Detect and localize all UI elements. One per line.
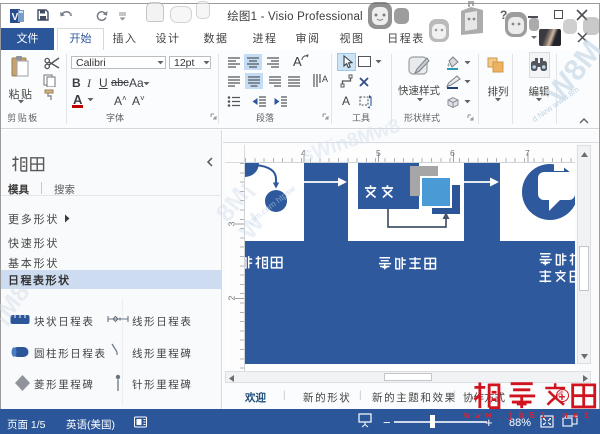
svg-text:A: A [322,74,328,84]
svg-text:V: V [12,12,19,23]
